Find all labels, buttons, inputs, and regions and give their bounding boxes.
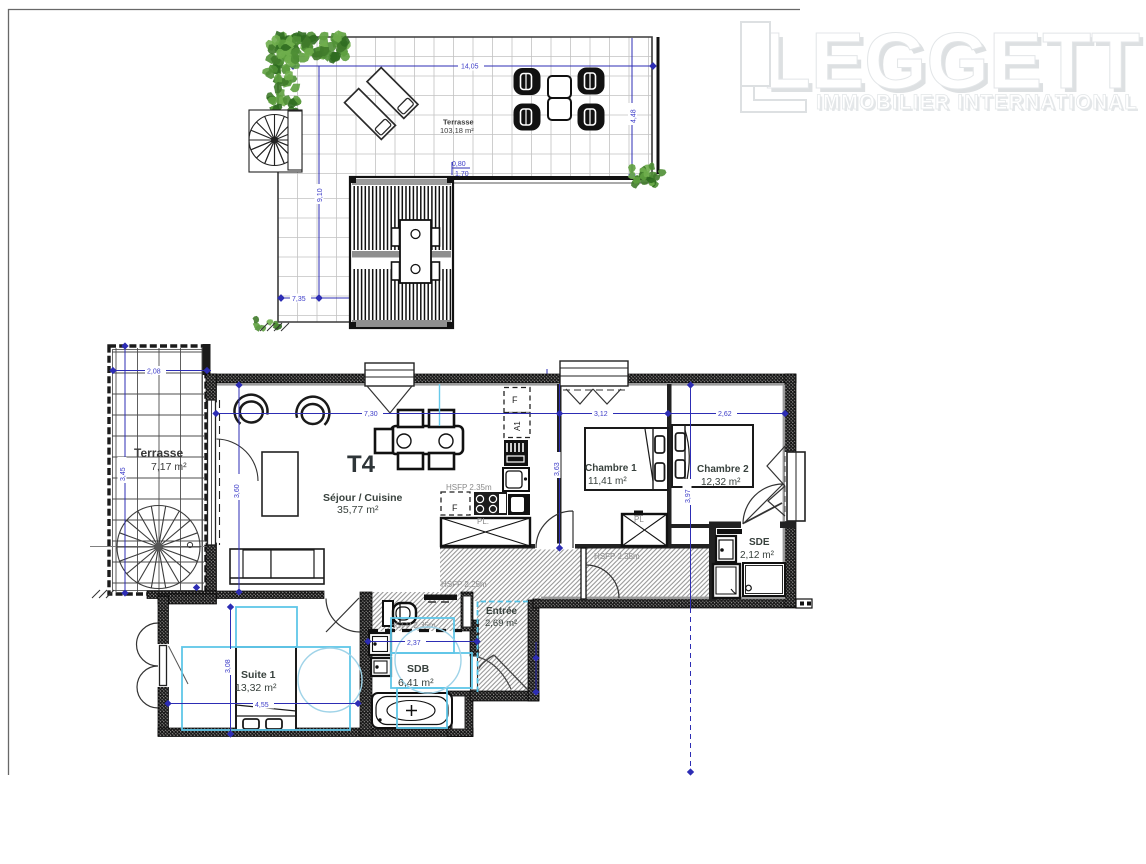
svg-text:Chambre 2: Chambre 2 bbox=[697, 464, 749, 475]
svg-text:HSFP 2.35m: HSFP 2.35m bbox=[594, 552, 640, 561]
svg-text:2,08: 2,08 bbox=[147, 369, 161, 376]
svg-text:2,62: 2,62 bbox=[718, 411, 732, 418]
svg-text:35,77 m²: 35,77 m² bbox=[337, 504, 379, 516]
svg-text:PL.: PL. bbox=[477, 517, 489, 526]
svg-text:14,05: 14,05 bbox=[461, 64, 479, 71]
svg-text:2,69 m²: 2,69 m² bbox=[485, 618, 517, 629]
svg-text:4,55: 4,55 bbox=[255, 702, 269, 709]
svg-text:Terrasse: Terrasse bbox=[134, 446, 183, 460]
svg-text:12,32 m²: 12,32 m² bbox=[701, 477, 741, 488]
svg-text:3,60: 3,60 bbox=[234, 484, 241, 498]
svg-text:13,32 m²: 13,32 m² bbox=[235, 682, 277, 694]
svg-text:3,97: 3,97 bbox=[685, 489, 692, 503]
svg-text:11,41 m²: 11,41 m² bbox=[588, 476, 627, 487]
svg-text:Suite 1: Suite 1 bbox=[241, 669, 276, 681]
svg-text:SDB: SDB bbox=[407, 663, 430, 675]
svg-text:T4: T4 bbox=[347, 451, 376, 478]
svg-text:A1: A1 bbox=[513, 421, 522, 431]
svg-text:0,80: 0,80 bbox=[452, 161, 466, 168]
svg-text:9,10: 9,10 bbox=[317, 188, 324, 202]
svg-text:F: F bbox=[452, 503, 458, 513]
svg-text:7,30: 7,30 bbox=[364, 411, 378, 418]
svg-text:PL: PL bbox=[634, 515, 644, 524]
svg-text:HSFP 2.35m: HSFP 2.35m bbox=[390, 621, 436, 630]
svg-text:3,12: 3,12 bbox=[594, 411, 608, 418]
svg-text:2,12 m²: 2,12 m² bbox=[740, 550, 775, 561]
svg-text:Entrée: Entrée bbox=[486, 606, 518, 617]
svg-text:7,35: 7,35 bbox=[292, 296, 306, 303]
svg-text:3,08: 3,08 bbox=[225, 659, 232, 673]
svg-text:HSFP 2.25m: HSFP 2.25m bbox=[441, 580, 487, 589]
svg-text:1,70: 1,70 bbox=[455, 171, 469, 178]
svg-text:IMMOBILIER INTERNATIONAL: IMMOBILIER INTERNATIONAL bbox=[816, 91, 1138, 114]
svg-text:6,41 m²: 6,41 m² bbox=[398, 677, 434, 689]
svg-text:SDE: SDE bbox=[749, 537, 770, 548]
svg-text:Chambre 1: Chambre 1 bbox=[585, 463, 637, 474]
svg-text:103,18 m²: 103,18 m² bbox=[440, 126, 474, 135]
svg-text:4,48: 4,48 bbox=[631, 109, 638, 123]
svg-text:2,37: 2,37 bbox=[407, 640, 421, 647]
svg-text:HSFP 2.35m: HSFP 2.35m bbox=[446, 483, 492, 492]
svg-text:7,17 m²: 7,17 m² bbox=[151, 461, 187, 473]
svg-text:F: F bbox=[512, 395, 518, 405]
svg-text:Séjour / Cuisine: Séjour / Cuisine bbox=[323, 492, 403, 504]
svg-text:3,45: 3,45 bbox=[120, 467, 127, 481]
svg-text:3,63: 3,63 bbox=[554, 462, 561, 476]
